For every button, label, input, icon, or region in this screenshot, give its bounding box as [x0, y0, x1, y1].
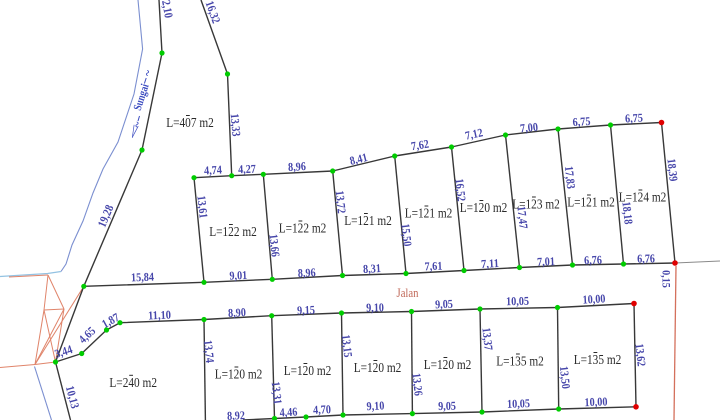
svg-text:L=240 m2: L=240 m2 — [109, 375, 157, 390]
svg-text:8,31: 8,31 — [363, 261, 382, 276]
svg-text:10,00: 10,00 — [582, 291, 606, 306]
svg-text:4,74: 4,74 — [204, 163, 223, 178]
svg-text:13,37: 13,37 — [479, 327, 495, 351]
svg-text:13,62: 13,62 — [632, 343, 648, 367]
svg-text:13,31: 13,31 — [269, 381, 285, 405]
svg-text:Jalan: Jalan — [397, 285, 419, 300]
svg-text:4,46: 4,46 — [279, 404, 298, 419]
svg-text:10,05: 10,05 — [506, 294, 529, 308]
svg-text:13,50: 13,50 — [557, 365, 573, 389]
svg-text:13,74: 13,74 — [201, 339, 217, 363]
svg-text:13,66: 13,66 — [266, 233, 282, 257]
svg-text:9,10: 9,10 — [366, 300, 384, 314]
svg-text:9,10: 9,10 — [366, 398, 385, 413]
svg-text:6,75: 6,75 — [572, 114, 591, 129]
svg-text:13,26: 13,26 — [409, 372, 425, 396]
svg-text:11,10: 11,10 — [148, 308, 171, 323]
svg-text:0,15: 0,15 — [660, 270, 674, 288]
svg-text:9,15: 9,15 — [297, 303, 315, 318]
svg-text:L=121 m2: L=121 m2 — [344, 213, 392, 228]
svg-text:L=122 m2: L=122 m2 — [279, 221, 327, 236]
svg-text:6,76: 6,76 — [584, 253, 602, 268]
svg-text:8,96: 8,96 — [297, 265, 316, 280]
svg-text:7,00: 7,00 — [519, 120, 538, 136]
svg-text:9,01: 9,01 — [229, 268, 247, 283]
svg-text:17,83: 17,83 — [562, 165, 578, 189]
svg-text:13,33: 13,33 — [228, 113, 244, 137]
svg-text:L=121 m2: L=121 m2 — [567, 195, 615, 210]
svg-text:13,61: 13,61 — [194, 195, 210, 219]
svg-text:18,39: 18,39 — [664, 158, 680, 182]
svg-text:L=135 m2: L=135 m2 — [574, 352, 622, 367]
svg-text:8,92: 8,92 — [227, 408, 245, 420]
svg-text:L=120 m2: L=120 m2 — [215, 367, 263, 382]
svg-text:15,50: 15,50 — [398, 223, 414, 247]
svg-text:L=124 m2: L=124 m2 — [619, 190, 667, 205]
svg-text:7,11: 7,11 — [481, 256, 500, 271]
svg-text:16,52: 16,52 — [452, 178, 468, 202]
svg-text:L=121 m2: L=121 m2 — [405, 206, 453, 221]
svg-text:8,96: 8,96 — [288, 159, 307, 174]
svg-text:9,05: 9,05 — [435, 297, 453, 312]
svg-text:6,76: 6,76 — [637, 251, 655, 265]
svg-text:L=135 m2: L=135 m2 — [496, 354, 544, 369]
svg-text:4,27: 4,27 — [238, 162, 256, 177]
svg-text:L=120 m2: L=120 m2 — [354, 360, 402, 375]
svg-text:7,61: 7,61 — [424, 259, 442, 274]
svg-text:8,90: 8,90 — [228, 305, 247, 320]
svg-text:9,05: 9,05 — [438, 399, 456, 413]
svg-text:L=122 m2: L=122 m2 — [209, 224, 257, 239]
svg-text:10,00: 10,00 — [584, 394, 607, 409]
svg-text:L=407 m2: L=407 m2 — [166, 115, 214, 130]
svg-text:6,75: 6,75 — [625, 111, 644, 126]
svg-text:13,72: 13,72 — [333, 190, 349, 214]
svg-text:4,70: 4,70 — [313, 402, 331, 417]
svg-text:L=120 m2: L=120 m2 — [424, 357, 472, 372]
svg-text:13,15: 13,15 — [339, 334, 355, 358]
svg-text:7,62: 7,62 — [410, 137, 430, 154]
svg-text:L=120 m2: L=120 m2 — [284, 363, 332, 378]
svg-text:7,01: 7,01 — [537, 254, 555, 269]
svg-text:L=123 m2: L=123 m2 — [512, 197, 560, 212]
svg-text:10,05: 10,05 — [507, 396, 530, 411]
svg-text:15,84: 15,84 — [131, 270, 154, 285]
svg-text:L=120 m2: L=120 m2 — [460, 200, 508, 215]
